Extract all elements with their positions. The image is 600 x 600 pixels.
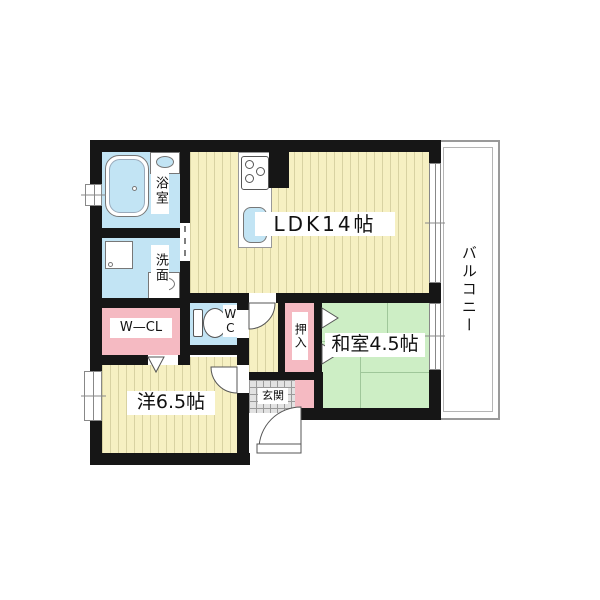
door-arc-entry (259, 407, 301, 449)
entry-door-leaf (257, 444, 301, 453)
genkan-label: 玄関 (258, 388, 288, 404)
door-arc-hall (249, 303, 275, 329)
youshitsu-label: 洋6.5帖 (127, 391, 215, 415)
washitsu-label: 和室4.5帖 (325, 333, 425, 357)
floor-plan: LDK14帖 和室4.5帖 洋6.5帖 浴室 洗面 W—CL WC 押入 玄関 … (0, 0, 600, 600)
ldk-label: LDK14帖 (255, 212, 395, 236)
senmen-label: 洗面 (151, 245, 169, 291)
wc-label: WC (223, 305, 237, 337)
balcony-label: バルコニー (457, 222, 479, 358)
wcl-label: W—CL (110, 318, 172, 338)
bath-label: 浴室 (151, 168, 169, 214)
oshiire-label: 押入 (292, 312, 308, 360)
door-swing-overlay (0, 0, 600, 600)
door-arc-youshitsu (211, 367, 237, 393)
wcl-opening-mark (148, 357, 164, 372)
oshiire-door-mark (322, 308, 338, 328)
